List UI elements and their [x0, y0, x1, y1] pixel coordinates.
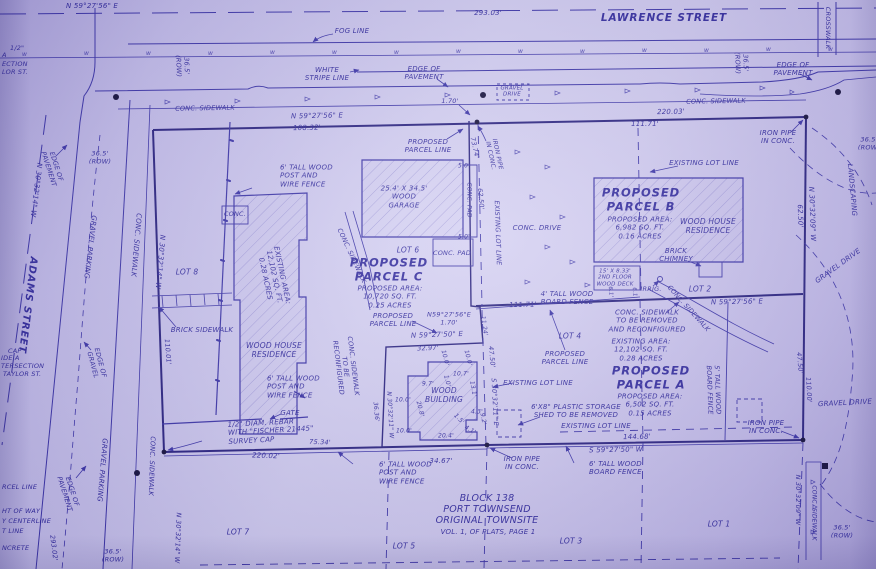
cut-lot-line: T LINE	[2, 528, 24, 536]
cut-right-of-way: HT OF WAY	[2, 508, 40, 516]
bearing-right-top: N 30°32'09" W	[807, 187, 817, 242]
dim-22003: 220.03'	[657, 108, 685, 117]
conc-box-label: CONC.	[224, 211, 246, 219]
existing-lot-line-b: EXISTING LOT LINE	[669, 159, 739, 167]
edge-of-gravel: EDGE OF GRAVEL	[85, 347, 108, 380]
dim-11171-top: 111.71'	[631, 120, 659, 128]
dim-3467: 34.67'	[429, 457, 452, 465]
water-line-marker: w	[580, 48, 585, 55]
garage-label: 25.4' X 34.5' WOOD GARAGE	[381, 185, 428, 210]
dim-wb-41: 4.1'	[463, 424, 477, 436]
irrig-label: IRRIG.	[640, 286, 661, 294]
dim-wb-100c: 10.0'	[395, 396, 411, 403]
cut-a: A	[2, 52, 7, 60]
proposed-parcel-line-top: PROPOSED PARCEL LINE	[405, 138, 452, 155]
dim-wb-97: 9.7'	[422, 380, 434, 387]
dim-7534: 75.34'	[309, 439, 331, 447]
water-line-marker: w	[270, 49, 275, 56]
iron-pipe-bottom-mid: IRON PIPE IN CONC.	[504, 455, 541, 472]
dim-50-bottom: 5.0'	[458, 233, 470, 240]
dim-170-top: 1.70'	[441, 98, 458, 106]
bearing-b-line: N 59°27'56" E	[711, 297, 763, 306]
row-top-right: 36.5' (ROW)	[733, 52, 749, 75]
dim-3297: 32.97'	[417, 345, 439, 353]
dim-wb-100a: 10.0'	[440, 349, 451, 366]
conc-drive-label: CONC. DRIVE	[513, 224, 562, 232]
water-line-marker: w	[642, 47, 647, 54]
dim-wb-131: 13.1'	[468, 380, 478, 397]
row-left-top: 36.5' (ROW)	[174, 55, 190, 78]
house-left-label: WOOD HOUSE RESIDENCE	[246, 342, 302, 360]
iron-pipe-top-right: IRON PIPE IN CONC.	[760, 129, 797, 146]
wood-building-label: WOOD BUILDING	[425, 387, 463, 405]
cut-centerline: Y CENTERLINE	[2, 518, 51, 526]
gravel-drive-right: GRAVEL DRIVE	[818, 397, 872, 408]
dim-wb-100d: 10.0'	[396, 427, 412, 434]
bearing-bottom-right: S 59°27'50" W	[589, 445, 643, 454]
bearing-adams-1: N 30°32'14" W	[29, 162, 44, 217]
house-b-label: WOOD HOUSE RESIDENCE	[680, 218, 736, 236]
water-line-marker: w	[208, 50, 213, 57]
parcel-a-area: PROPOSED AREA: 6,502 SQ. FT. 0.15 ACRES	[618, 393, 683, 418]
lawrence-street-name: LAWRENCE STREET	[601, 12, 727, 24]
dim-11001: 110.01'	[162, 339, 172, 366]
bearing-303211w: N 30°32'11" W	[385, 391, 395, 438]
dim-4750-mid: 47.50'	[486, 346, 496, 368]
conc-sidewalk-top-right: CONC. SIDEWALK	[686, 98, 746, 107]
jog-bearing: N59°27'56"E 1.70'	[427, 311, 471, 326]
lot-7-label: LOT 7	[227, 529, 250, 538]
dim-1124: 11.24'	[479, 316, 489, 337]
wire-fence-bottom: 6' TALL WOOD POST AND WIRE FENCE	[379, 461, 432, 486]
existing-lot-line-bottom-right: EXISTING LOT LINE	[561, 422, 631, 430]
dim-wb-15: 1.5'	[452, 412, 465, 425]
bearing-bottom-right-vert: N 30°32'09" W	[793, 475, 801, 526]
landscaping-label: LANDSCAPING	[846, 163, 859, 216]
water-line-marker: w	[146, 50, 151, 57]
proposed-parcel-line-c: PROPOSED PARCEL LINE	[370, 312, 417, 329]
wire-fence-mid-left: 6' TALL WOOD POST AND WIRE FENCE	[267, 375, 320, 400]
dim-wb-107: 10.7'	[453, 370, 469, 377]
dim-14468: 144.68'	[623, 433, 651, 442]
parcel-a-title: PROPOSED PARCEL A	[612, 364, 690, 391]
dim-6250-right: 62.50'	[795, 204, 804, 227]
water-line-marker: w	[332, 49, 337, 56]
lot-4-label: LOT 4	[559, 333, 582, 342]
block-title: BLOCK 138 PORT TOWNSEND ORIGINAL TOWNSIT…	[436, 493, 539, 527]
fog-line-label: FOG LINE	[335, 27, 369, 35]
bearing-lawrence-centerline: N 59°27'56" E	[66, 2, 118, 10]
adams-street-name: ADAMS STREET	[15, 256, 39, 354]
edge-pavement-top-left: EDGE OF PAVEMENT	[404, 65, 443, 82]
dim-wb-100b: 10.0'	[463, 349, 474, 366]
row-left-mid: 36.5' (ROW)	[89, 150, 111, 165]
dim-wb-92: 9.2'	[478, 412, 487, 425]
dim-61-a: 6.1'	[606, 286, 613, 298]
edge-pavement-top-right: EDGE OF PAVEMENT	[773, 61, 812, 78]
cut-lor-st: LOR ST.	[2, 69, 28, 77]
rebar-label: 1/2" DIAM. REBAR WITH "FISCHER 21445" SU…	[227, 416, 314, 445]
dim-29302: 293.02'	[48, 535, 59, 562]
bearing-top-mid: N 59°27'56" E	[291, 111, 343, 120]
water-line-marker: w	[828, 46, 833, 53]
parcel-a-existing-area: EXISTING AREA: 12,102 SQ. FT. 0.28 ACRES	[611, 338, 670, 363]
existing-lot-line-rotated: EXISTING LOT LINE	[492, 200, 502, 265]
cut-taylor-st: TAYLOR ST.	[3, 371, 41, 379]
cut-parcel-line: RCEL LINE	[2, 484, 37, 492]
white-stripe-label: WHITE STRIPE LINE	[305, 66, 349, 83]
row-bottom-left: 36.5' (ROW)	[102, 548, 124, 563]
brick-sidewalk-label: BRICK SIDEWALK	[171, 326, 233, 334]
dim-11171-mid: 111.71'	[509, 301, 537, 310]
dim-7374: 73.74'	[468, 137, 480, 160]
parcel-b-title: PROPOSED PARCEL B	[602, 186, 680, 213]
edge-pavement-bottom-left: EDGE OF PAVEMENT	[55, 473, 81, 512]
conc-sidewalk-bottom-left: CONC. SIDEWALK	[146, 436, 156, 496]
water-line-marker: w	[22, 51, 27, 58]
existing-lot-line-mid: EXISTING LOT LINE	[503, 379, 573, 387]
gate-label: GATE	[280, 409, 299, 417]
conc-pad-rotated: CONC. PAD	[465, 182, 472, 217]
lot-1-label: LOT 1	[708, 521, 731, 530]
dim-wb-204: 20.4'	[438, 432, 454, 439]
dim-61-b: 6.1'	[630, 287, 637, 299]
water-line-marker: w	[456, 48, 461, 55]
dim-22002: 220.02'	[252, 451, 280, 460]
lot-8-label: LOT 8	[176, 269, 199, 278]
gravel-parking-1: GRAVEL PARKING	[82, 215, 98, 279]
water-line-marker: w	[704, 47, 709, 54]
plat-drawing: N 59°27'56" E293.03'LAWRENCE STREETFOG L…	[0, 0, 876, 569]
board-fence-4ft: 4' TALL WOOD BOARD FENCE	[541, 290, 594, 307]
bearing-adams-2: N 30°32'14" W	[154, 234, 167, 289]
parcel-c-existing-area: EXISTING AREA: 12,102 SQ. FT. 0.28 ACRES	[256, 246, 292, 309]
conc-sidewalk-adams-1: CONC. SIDEWALK	[129, 213, 143, 277]
wire-fence-top-left: 6' TALL WOOD POST AND WIRE FENCE	[280, 164, 333, 189]
brick-chimney-label: BRICK CHIMNEY	[659, 247, 693, 264]
cut-concrete: NCRETE	[2, 545, 29, 553]
crosswalk-label: CROSSWALK	[823, 7, 831, 49]
bearing-s3032: S 30°32'11" E	[489, 378, 499, 426]
board-fence-5ft: 5' TALL WOOD BOARD FENCE	[704, 365, 721, 415]
gravel-drive-box-label: GRAVEL DRIVE	[500, 86, 523, 99]
lot-6-label: LOT 6	[397, 247, 420, 256]
water-line-marker: w	[766, 46, 771, 53]
dim-11000: 110.00'	[803, 377, 812, 403]
dim-lawrence-293: 293.03'	[474, 9, 502, 17]
gravel-parking-2: GRAVEL PARKING	[95, 438, 109, 502]
water-line-marker: w	[394, 49, 399, 56]
lot-2-label: LOT 2	[689, 286, 712, 295]
dim-4750-right: 47.50'	[794, 352, 804, 374]
dim-50-top: 5.0'	[458, 162, 470, 169]
dim-3636: 36.36'	[372, 402, 381, 423]
lot-5-label: LOT 5	[393, 543, 416, 552]
conc-sidewalk-top-left: CONC. SIDEWALK	[175, 105, 235, 114]
edge-pavement-adams: EDGE OF PAVEMENT	[39, 148, 65, 187]
gravel-drive-top-right: GRAVEL DRIVE	[814, 247, 863, 285]
board-fence-bottom: 6' TALL WOOD BOARD FENCE	[589, 460, 642, 477]
conc-pad-2-label: CONC. PAD	[433, 250, 471, 258]
deck-label: 15' X 8.33' 2ND FLOOR WOOD DECK	[596, 268, 633, 287]
proposed-parcel-line-mid: PROPOSED PARCEL LINE	[542, 350, 589, 367]
block-volume: VOL. 1, OF PLATS, PAGE 1	[441, 528, 536, 536]
row-bottom-right: 36.5' (ROW)	[831, 524, 853, 539]
parcel-c-area: PROPOSED AREA: 10,720 SQ. FT. 0.25 ACRES	[358, 285, 423, 310]
dim-wb-208: 20.8'	[415, 400, 426, 417]
annotation-layer: N 59°27'56" E293.03'LAWRENCE STREETFOG L…	[0, 0, 876, 569]
conc-sidewalk-bottom-right: CONC. SIDEWALK	[810, 485, 817, 540]
dim-10832: 108.32'	[293, 124, 321, 133]
shed-label: 6'X8" PLASTIC STORAGE SHED TO BE REMOVED	[531, 403, 621, 420]
iron-pipe-bottom-right: IRON PIPE IN CONC.	[748, 419, 785, 436]
water-line-marker: w	[518, 48, 523, 55]
bearing-bottom-left: N 30°32'14" W	[172, 512, 181, 563]
conc-sidewalk-reconfigured: CONC. SIDEWALK TO BE RECONFIGURED	[330, 336, 360, 398]
lot-3-label: LOT 3	[560, 538, 583, 547]
water-line-marker: w	[84, 50, 89, 57]
row-right-edge: 36.5' (ROW)	[858, 136, 876, 151]
parcel-b-area: PROPOSED AREA: 6,982 SQ. FT. 0.16 ACRES	[608, 216, 673, 241]
dim-6250-mid: 62.50'	[475, 188, 485, 210]
iron-pipe-rotated: IRON PIPE IN CONC.	[484, 138, 504, 172]
bearing-592750: N 59°27'50" E	[411, 330, 463, 340]
conc-sidewalk-removed: CONC. SIDEWALK TO BE REMOVED AND RECONFI…	[608, 309, 685, 334]
